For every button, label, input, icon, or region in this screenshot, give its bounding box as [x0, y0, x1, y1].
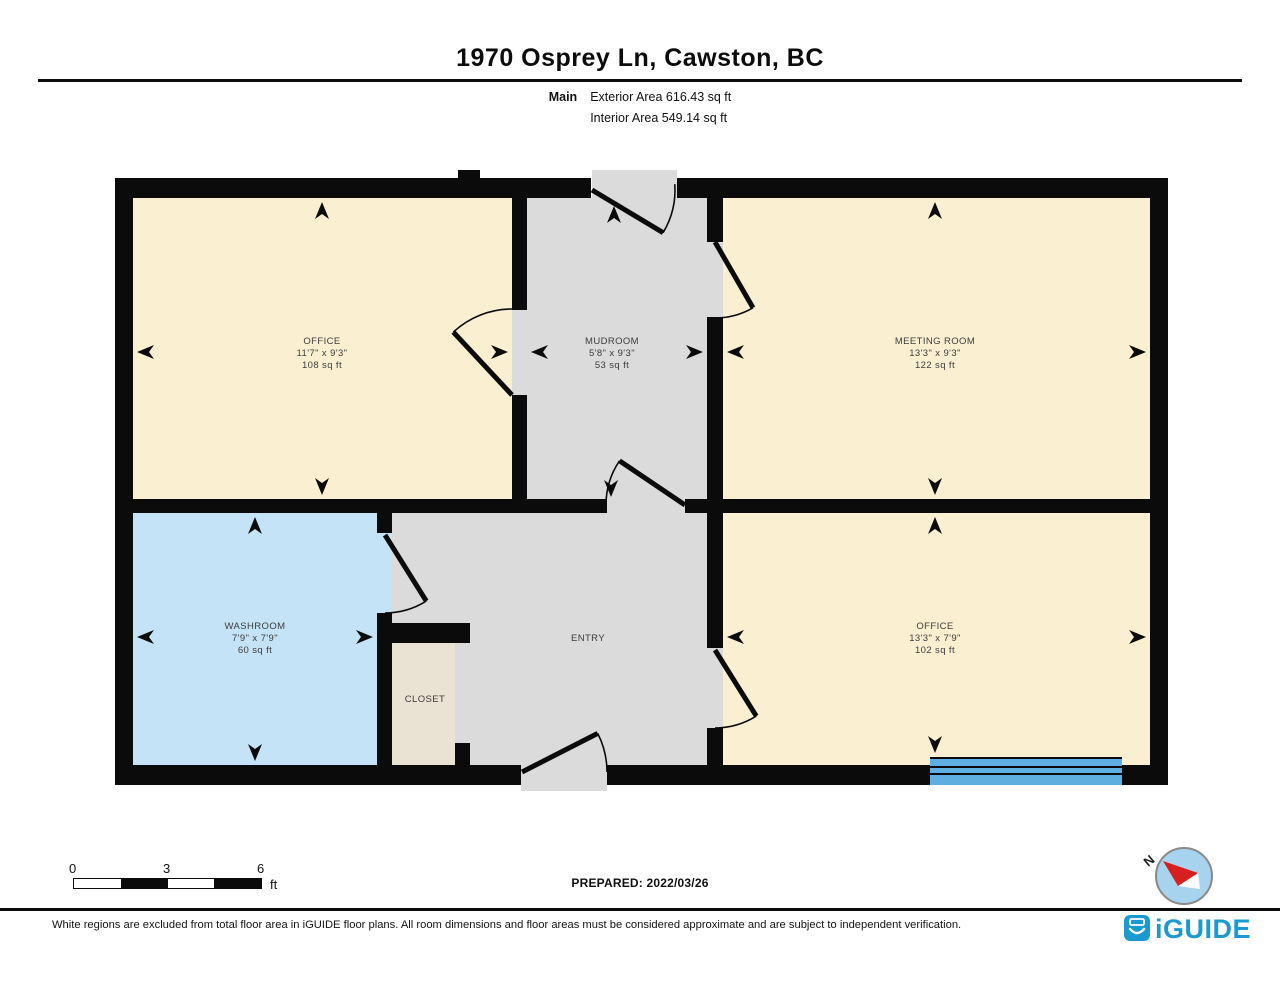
wall-segment — [707, 728, 723, 765]
scale-tick-3: 3 — [163, 861, 170, 876]
room-name-meeting-room: MEETING ROOM — [895, 336, 975, 347]
wall-segment — [115, 178, 133, 785]
disclaimer-text: White regions are excluded from total fl… — [52, 919, 961, 931]
wall-segment — [1150, 178, 1168, 785]
room-dimensions-mudroom: 5'8" x 9'3" — [589, 348, 635, 359]
wall-segment — [133, 499, 607, 513]
floor-label: Main — [549, 90, 577, 125]
wall-segment — [115, 178, 591, 198]
floor-fill-extension — [607, 499, 685, 513]
room-name-washroom: WASHROOM — [225, 621, 286, 632]
window-pane-line — [930, 773, 1122, 775]
title-divider — [38, 79, 1242, 82]
floorplan-page: OFFICE11'7" x 9'3"108 sq ftMUDROOM5'8" x… — [0, 0, 1280, 989]
footer-divider — [0, 908, 1280, 911]
room-dimensions-office: 11'7" x 9'3" — [297, 348, 348, 359]
wall-segment — [685, 499, 1150, 513]
window — [930, 757, 1122, 785]
iguide-logo-text: iGUIDE — [1155, 914, 1251, 944]
window-pane-line — [930, 757, 1122, 759]
floorplan-drawing: OFFICE11'7" x 9'3"108 sq ftMUDROOM5'8" x… — [0, 0, 1280, 989]
wall-segment — [707, 513, 723, 648]
floor-summary: Main Exterior Area 616.43 sq ft Interior… — [0, 90, 1280, 125]
room-area-mudroom: 53 sq ft — [595, 360, 629, 371]
interior-area: Interior Area 549.14 sq ft — [590, 111, 731, 125]
room-name-mudroom: MUDROOM — [585, 336, 639, 347]
room-area-office: 108 sq ft — [302, 360, 342, 371]
room-dimensions-office: 13'3" x 7'9" — [909, 633, 961, 644]
scale-tick-6: 6 — [257, 861, 264, 876]
window-pane-line — [930, 766, 1122, 768]
room-name-entry: ENTRY — [571, 633, 605, 644]
wall-segment — [512, 198, 527, 310]
wall-segment — [377, 513, 392, 533]
wall-segment — [677, 178, 1168, 198]
floor-fill-extension — [512, 310, 527, 395]
wall-segment — [707, 198, 723, 242]
room-area-meeting-room: 122 sq ft — [915, 360, 955, 371]
room-name-closet: CLOSET — [405, 694, 445, 705]
wall-segment — [707, 317, 723, 499]
room-name-office: OFFICE — [916, 621, 953, 632]
wall-segment — [115, 765, 521, 785]
room-name-office: OFFICE — [303, 336, 340, 347]
wall-segment — [377, 623, 470, 643]
room-dimensions-washroom: 7'9" x 7'9" — [232, 633, 278, 644]
compass-north-label: N — [1141, 852, 1158, 870]
scale-tick-0: 0 — [69, 861, 76, 876]
room-area-office: 102 sq ft — [915, 645, 955, 656]
wall-segment — [458, 170, 480, 182]
room-dimensions-meeting-room: 13'3" x 9'3" — [909, 348, 961, 359]
wall-segment — [455, 743, 470, 765]
exterior-area: Exterior Area 616.43 sq ft — [590, 90, 731, 104]
prepared-date: PREPARED: 2022/03/26 — [0, 876, 1280, 890]
wall-segment — [512, 395, 527, 499]
page-title: 1970 Osprey Ln, Cawston, BC — [0, 44, 1280, 73]
room-area-washroom: 60 sq ft — [238, 645, 272, 656]
floor-fill-extension — [521, 765, 607, 791]
